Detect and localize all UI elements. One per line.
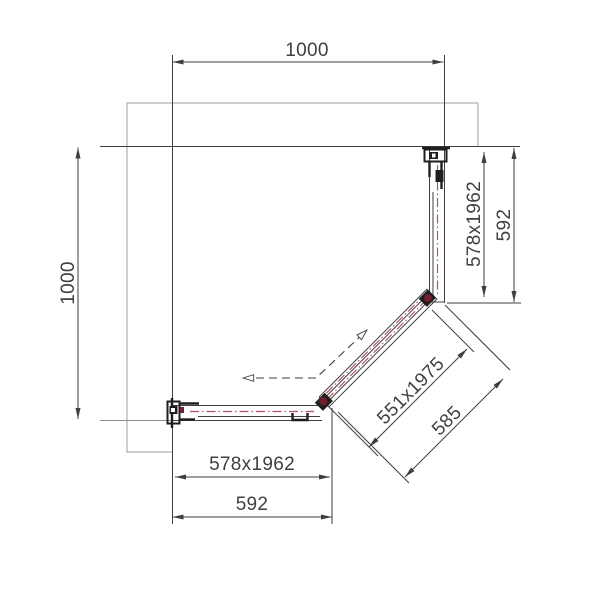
dim-label-bottom-glass: 578x1962 [209,454,295,475]
bottom-profile-gasket [180,407,184,413]
dim-label-bottom-width: 592 [236,494,269,515]
dimension-diagonal-glass: 551x1975 [369,349,467,447]
extension-diagonal-glass-top [432,310,474,352]
dimension-top-width: 1000 [173,40,444,62]
dimension-bottom-glass: 578x1962 [175,454,330,477]
extension-diagonal-total-top [445,305,510,370]
dim-label-top-width: 1000 [285,40,328,61]
bottom-wall-profile [168,398,200,428]
dimension-right-glass: 578x1962 [464,152,485,297]
door-direction-arrow [243,330,367,378]
dim-label-diagonal-width: 585 [428,402,466,440]
extension-diagonal-glass-bottom [327,405,378,456]
dim-label-right-width: 592 [494,209,515,242]
drawing-canvas: 1000 1000 578x1962 592 551x1975 585 578x… [0,0,600,600]
bottom-profile-notch [171,408,175,412]
right-profile-notch [432,154,436,158]
bottom-fixed-panel [168,398,327,428]
right-profile-clamp [436,170,444,182]
wall-outline [100,55,520,524]
right-fixed-panel [422,147,450,303]
dimension-left-height: 1000 [58,148,79,420]
dim-label-left-height: 1000 [58,261,79,304]
dim-label-right-glass: 578x1962 [464,181,485,267]
right-wall-profile [422,148,450,189]
extension-diagonal-total-bottom [338,412,409,483]
extension-lines [100,55,521,524]
shower-enclosure-plan: 1000 1000 578x1962 592 551x1975 585 578x… [0,0,600,600]
dimension-right-width: 592 [494,148,515,302]
dimension-bottom-width: 592 [173,494,333,517]
